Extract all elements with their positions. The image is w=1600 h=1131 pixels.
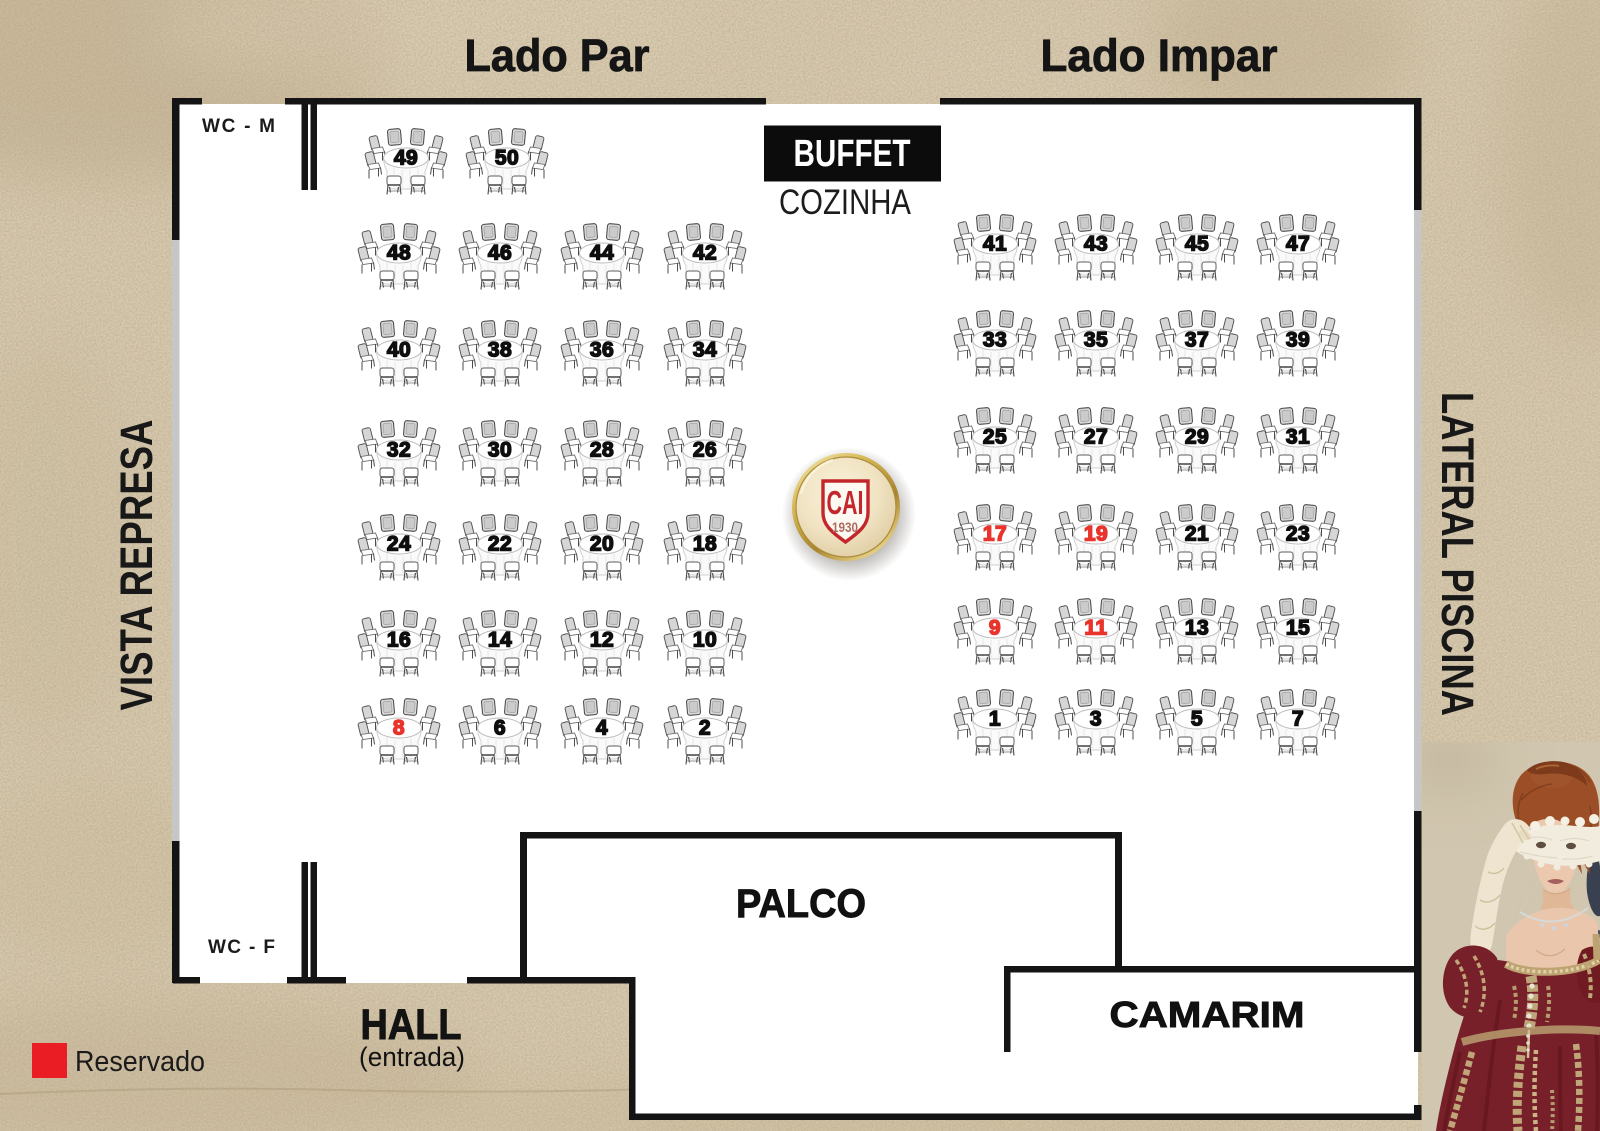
svg-text:47: 47 [1286,233,1310,256]
svg-text:29: 29 [1185,426,1209,449]
svg-text:41: 41 [983,233,1007,256]
svg-text:8: 8 [393,717,405,740]
svg-text:36: 36 [590,339,614,362]
svg-text:9: 9 [989,617,1001,640]
svg-text:7: 7 [1292,708,1304,731]
svg-text:WC - F: WC - F [208,937,275,958]
svg-text:19: 19 [1084,523,1108,546]
svg-text:23: 23 [1286,523,1310,546]
svg-text:21: 21 [1185,523,1209,546]
svg-text:31: 31 [1286,426,1310,449]
svg-text:2: 2 [699,717,711,740]
svg-text:1930: 1930 [832,520,858,535]
svg-text:CAMARIM: CAMARIM [1110,994,1305,1035]
svg-text:22: 22 [488,533,512,556]
svg-text:42: 42 [693,242,717,265]
svg-text:24: 24 [387,533,411,556]
svg-text:(entrada): (entrada) [359,1042,465,1072]
svg-text:44: 44 [590,242,614,265]
svg-text:39: 39 [1286,329,1310,352]
svg-text:VISTA REPRESA: VISTA REPRESA [111,420,162,711]
svg-text:17: 17 [983,523,1007,546]
svg-text:BUFFET: BUFFET [794,133,911,175]
svg-text:WC - M: WC - M [202,116,275,137]
svg-text:16: 16 [387,629,411,652]
svg-text:LATERAL PISCINA: LATERAL PISCINA [1432,392,1483,716]
svg-text:43: 43 [1084,233,1108,256]
svg-text:35: 35 [1084,329,1108,352]
svg-text:CAI: CAI [827,484,864,521]
svg-text:40: 40 [387,339,411,362]
svg-text:32: 32 [387,439,411,462]
svg-text:4: 4 [596,717,608,740]
svg-text:15: 15 [1286,617,1310,640]
svg-text:28: 28 [590,439,614,462]
svg-text:33: 33 [983,329,1007,352]
svg-text:20: 20 [590,533,614,556]
svg-text:34: 34 [693,339,717,362]
svg-text:37: 37 [1185,329,1209,352]
svg-text:10: 10 [693,629,717,652]
svg-text:12: 12 [590,629,614,652]
svg-text:Lado Impar: Lado Impar [1041,30,1278,81]
svg-text:11: 11 [1084,617,1107,640]
svg-text:30: 30 [488,439,512,462]
svg-text:14: 14 [488,629,512,652]
svg-text:25: 25 [983,426,1007,449]
svg-text:Lado Par: Lado Par [465,30,650,81]
svg-text:46: 46 [488,242,512,265]
svg-text:50: 50 [495,147,519,170]
svg-text:Reservado: Reservado [75,1046,205,1078]
svg-text:COZINHA: COZINHA [779,183,912,222]
svg-text:PALCO: PALCO [736,882,866,926]
svg-text:45: 45 [1185,233,1209,256]
svg-text:49: 49 [394,147,418,170]
svg-text:1: 1 [989,708,1001,731]
svg-text:26: 26 [693,439,717,462]
svg-text:27: 27 [1084,426,1108,449]
svg-text:38: 38 [488,339,512,362]
svg-text:6: 6 [494,717,506,740]
svg-text:13: 13 [1185,617,1209,640]
svg-text:48: 48 [387,242,411,265]
svg-text:18: 18 [693,533,717,556]
svg-text:5: 5 [1191,708,1203,731]
svg-text:3: 3 [1090,708,1102,731]
